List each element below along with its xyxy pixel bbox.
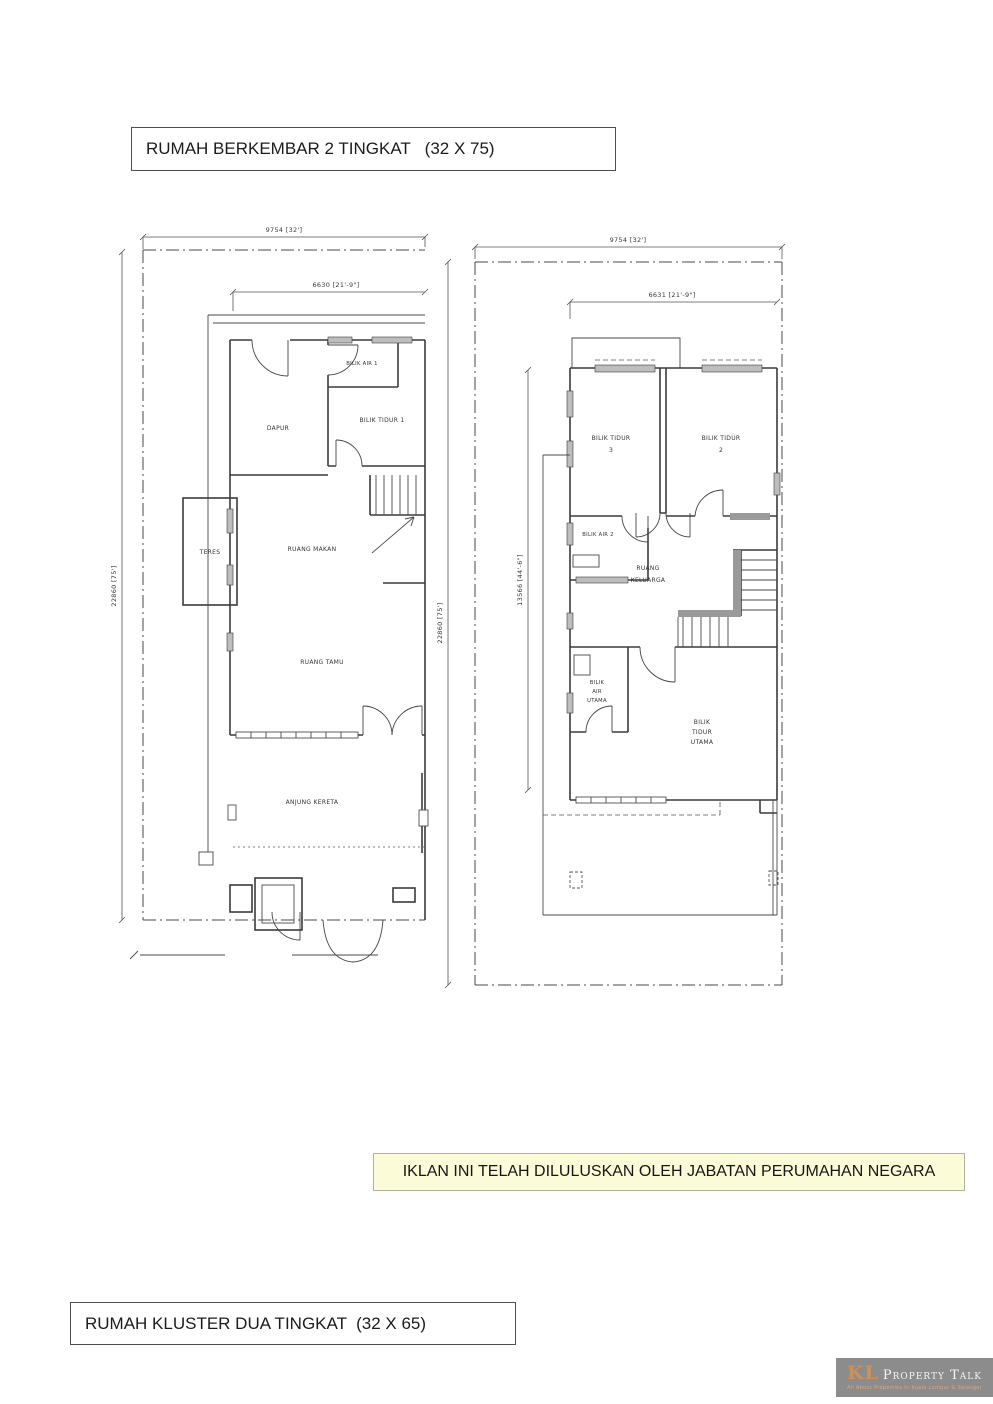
gf-label-ruang-tamu: RUANG TAMU	[300, 659, 344, 666]
ff-label-bilik-tidur-3-line1: BILIK TIDUR	[592, 435, 631, 442]
gf-label-bilik-tidur-1: BILIK TIDUR 1	[359, 417, 404, 424]
ff-dim-house-width: 6631 [21'-9"]	[648, 291, 695, 299]
ff-label-ruang-keluarga-line1: RUANG	[636, 565, 659, 572]
logo-name-text: Property Talk	[883, 1369, 982, 1382]
ff-room-labels: BILIK TIDUR 3 BILIK TIDUR 2 BILIK AIR 2 …	[582, 435, 740, 746]
ff-label-bilik-air-2: BILIK AIR 2	[582, 532, 614, 538]
ff-label-bilik-tidur-2-line2: 2	[719, 447, 723, 454]
title-box-top: RUMAH BERKEMBAR 2 TINGKAT (32 X 75)	[131, 127, 616, 171]
gf-label-dapur: DAPUR	[267, 425, 289, 432]
ff-label-bilik-air-utama-line2: AIR	[592, 689, 602, 695]
gf-stairs	[372, 475, 416, 553]
ff-label-ruang-keluarga-line2: KELUARGA	[631, 577, 666, 584]
ff-roof-extension	[572, 338, 680, 368]
ff-label-bilik-tidur-utama-line1: BILIK	[694, 719, 711, 726]
gf-walls	[183, 340, 425, 920]
gf-dim-lot-width: 9754 [32']	[266, 226, 303, 234]
approval-banner-text: IKLAN INI TELAH DILULUSKAN OLEH JABATAN …	[403, 1163, 936, 1181]
gf-column	[228, 805, 236, 820]
ff-bath2-fixture	[573, 555, 599, 567]
gf-label-ruang-makan: RUANG MAKAN	[288, 546, 337, 553]
logo-tagline: All About Properties In Kuala Lumpur & S…	[847, 1385, 982, 1391]
gf-dim-lot-depth: 22860 [75']	[110, 565, 118, 606]
gf-dimensions: 9754 [32'] 6630 [21'-9"] 22860 [75']	[110, 226, 428, 923]
ff-label-bilik-tidur-utama-line2: TIDUR	[691, 729, 712, 736]
gf-gate-post-right	[393, 888, 415, 902]
gf-label-anjung-kereta: ANJUNG KERETA	[286, 799, 339, 806]
ff-label-bilik-tidur-2-line1: BILIK TIDUR	[702, 435, 741, 442]
ff-label-bilik-air-utama-line1: BILIK	[590, 680, 605, 686]
gf-roofline	[199, 315, 425, 865]
ff-fixtures	[573, 555, 599, 675]
title-bottom-text: RUMAH KLUSTER DUA TINGKAT (32 X 65)	[85, 1314, 426, 1334]
ff-label-bilik-tidur-3-line2: 3	[609, 447, 613, 454]
kl-property-talk-logo: KL Property Talk All About Properties In…	[836, 1358, 993, 1397]
gf-dim-house-width: 6630 [21'-9"]	[312, 281, 359, 289]
ff-label-bilik-air-utama-line3: UTAMA	[587, 698, 607, 704]
gf-doors	[252, 340, 422, 962]
ff-label-bilik-tidur-utama-line3: UTAMA	[691, 739, 714, 746]
ff-master-bath-niche	[574, 655, 590, 675]
ff-bed2-closet	[730, 513, 770, 520]
ff-dim-lot-width: 9754 [32']	[610, 236, 647, 244]
title-box-bottom: RUMAH KLUSTER DUA TINGKAT (32 X 65)	[70, 1302, 516, 1345]
ff-dim-lot-depth: 22860 [75']	[436, 602, 444, 643]
first-floor-plan: 9754 [32'] 6631 [21'-9"] 22860 [75'] 135…	[430, 223, 800, 1013]
gf-label-teres: TERES	[199, 549, 221, 556]
page: RUMAH BERKEMBAR 2 TINGKAT (32 X 75) 9754…	[0, 0, 993, 1404]
logo-kl-text: KL	[847, 1364, 879, 1383]
ff-stairs	[678, 550, 777, 647]
ff-lower-roof	[543, 455, 778, 915]
gf-label-bilik-air-1: BILIK AIR 1	[346, 361, 378, 367]
title-top-text: RUMAH BERKEMBAR 2 TINGKAT (32 X 75)	[146, 139, 495, 159]
ff-windows	[567, 360, 780, 803]
ground-floor-plan: 9754 [32'] 6630 [21'-9"] 22860 [75']	[100, 213, 465, 988]
gf-gate-post-left	[230, 885, 252, 912]
gf-lot-boundary	[143, 250, 425, 920]
approval-banner: IKLAN INI TELAH DILULUSKAN OLEH JABATAN …	[373, 1153, 965, 1191]
ff-dim-house-depth: 13566 [44'-6"]	[516, 554, 524, 606]
